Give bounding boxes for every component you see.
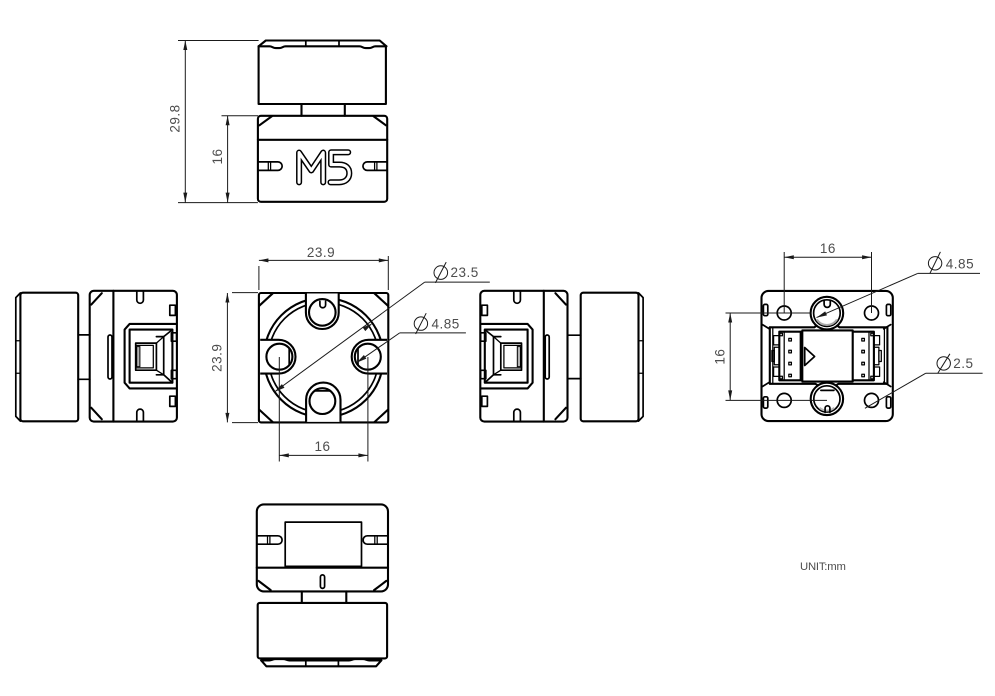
svg-text:4.85: 4.85: [432, 316, 460, 331]
svg-text:16: 16: [713, 349, 728, 365]
svg-text:16: 16: [820, 241, 836, 256]
svg-text:23.9: 23.9: [307, 245, 335, 260]
svg-text:23.9: 23.9: [210, 344, 225, 372]
svg-text:23.5: 23.5: [451, 265, 479, 280]
svg-text:2.5: 2.5: [953, 356, 973, 371]
svg-text:4.85: 4.85: [946, 257, 974, 272]
svg-text:29.8: 29.8: [168, 104, 183, 132]
svg-text:16: 16: [210, 148, 225, 164]
svg-text:UNIT:mm: UNIT:mm: [800, 561, 846, 573]
svg-text:16: 16: [314, 439, 330, 454]
